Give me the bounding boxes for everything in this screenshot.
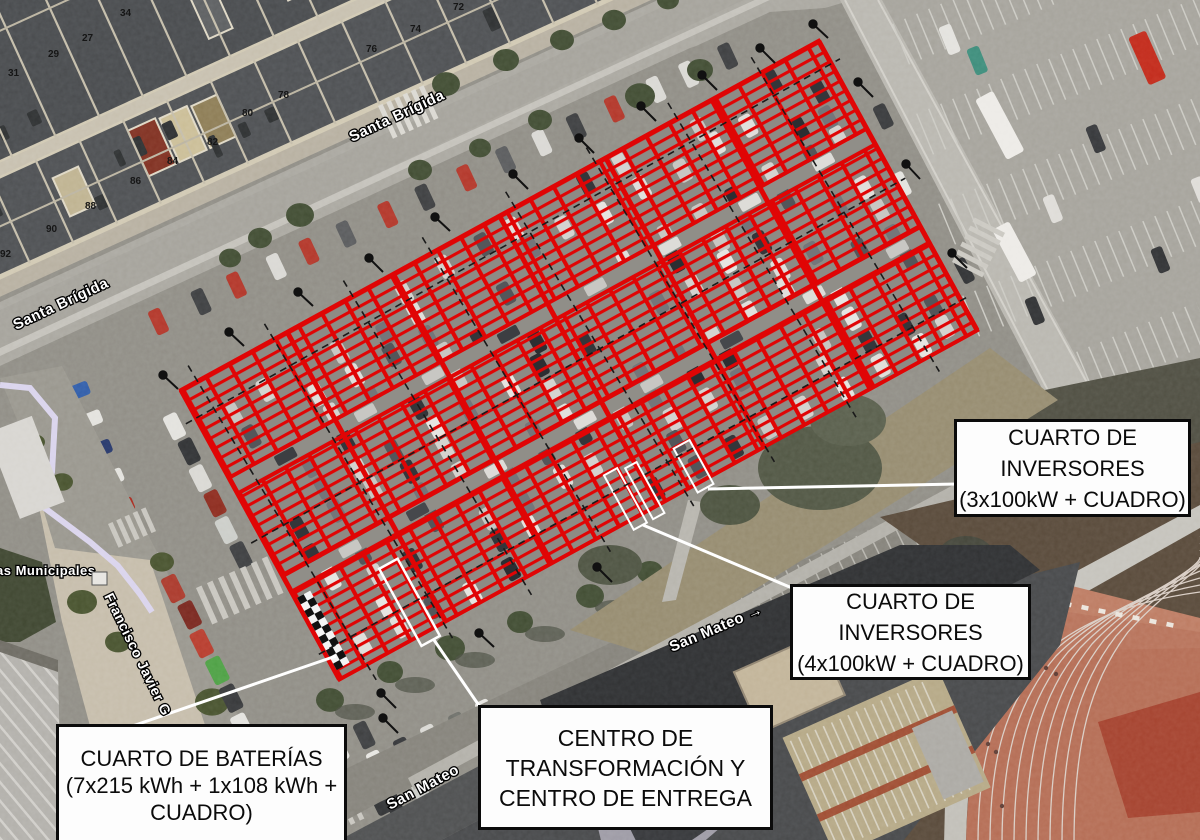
svg-text:72: 72	[453, 2, 465, 13]
svg-text:as Municipales: as Municipales	[0, 563, 95, 578]
svg-text:82: 82	[207, 137, 219, 148]
svg-text:74: 74	[410, 24, 422, 35]
svg-text:84: 84	[167, 156, 179, 167]
svg-text:34: 34	[120, 8, 132, 19]
svg-text:36: 36	[148, 0, 160, 3]
svg-text:90: 90	[46, 224, 58, 235]
svg-text:80: 80	[242, 108, 254, 119]
svg-text:76: 76	[366, 44, 378, 55]
svg-text:86: 86	[130, 176, 142, 187]
svg-text:27: 27	[82, 33, 94, 44]
svg-text:92: 92	[0, 249, 12, 260]
svg-text:88: 88	[85, 201, 97, 212]
svg-text:31: 31	[8, 68, 20, 79]
svg-text:78: 78	[278, 90, 290, 101]
svg-text:29: 29	[48, 49, 60, 60]
